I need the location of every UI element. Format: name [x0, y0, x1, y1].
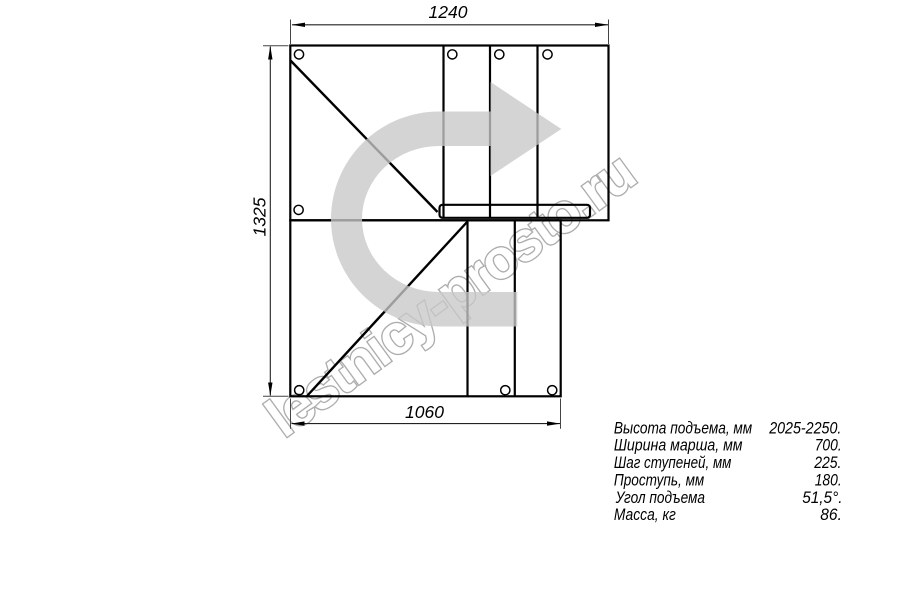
svg-text:1325: 1325: [249, 197, 269, 236]
svg-text:Высота подъема, мм: Высота подъема, мм: [614, 419, 752, 437]
svg-text:Проступь, мм: Проступь, мм: [614, 471, 704, 489]
svg-text:Ширина марша, мм: Ширина марша, мм: [614, 437, 743, 455]
svg-text:225.: 225.: [813, 454, 841, 472]
svg-text:Угол подъема: Угол подъема: [615, 489, 705, 507]
svg-text:86.: 86.: [820, 506, 842, 524]
svg-text:1240: 1240: [429, 2, 468, 22]
svg-text:Шаг ступеней, мм: Шаг ступеней, мм: [614, 454, 732, 472]
svg-text:1060: 1060: [405, 402, 444, 422]
svg-text:700.: 700.: [815, 437, 842, 455]
svg-text:Масса, кг: Масса, кг: [614, 506, 676, 524]
svg-text:2025-2250.: 2025-2250.: [768, 419, 841, 437]
svg-text:180.: 180.: [815, 471, 842, 489]
svg-text:51,5°.: 51,5°.: [802, 489, 842, 507]
